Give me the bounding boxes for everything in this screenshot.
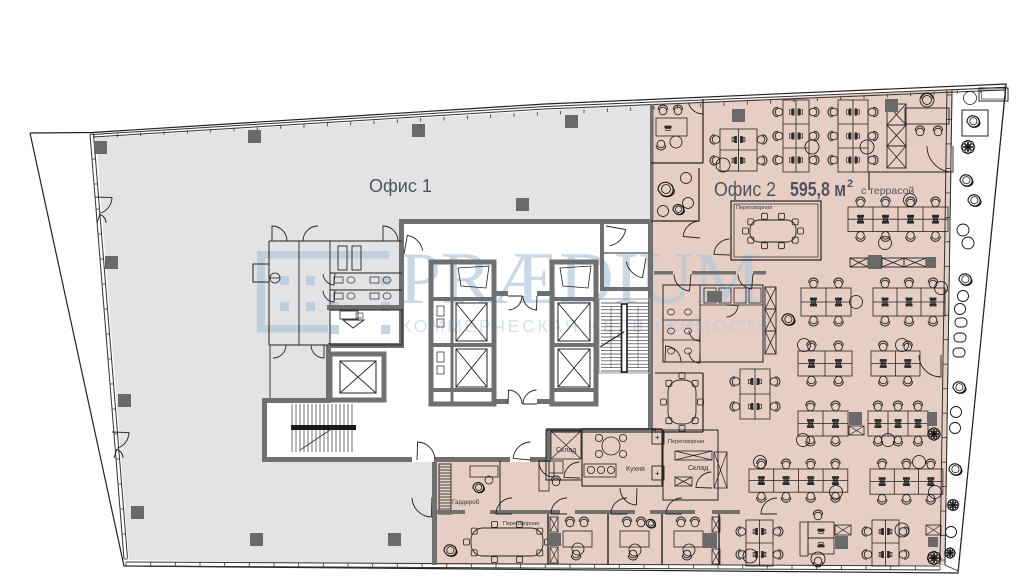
svg-text:Переговорная: Переговорная — [668, 439, 704, 445]
svg-text:+: + — [655, 469, 660, 478]
svg-text:Переговорная: Переговорная — [736, 205, 772, 211]
svg-text:Офис 2: Офис 2 — [714, 179, 776, 201]
svg-text:Гардероб: Гардероб — [452, 499, 480, 506]
svg-text:2: 2 — [847, 178, 853, 190]
svg-text:Переговорная: Переговорная — [503, 521, 539, 527]
svg-text:Офис 1: Офис 1 — [369, 176, 432, 196]
svg-text:Кухня: Кухня — [626, 466, 645, 473]
svg-text:с террасой: с террасой — [861, 185, 914, 197]
svg-text:Склад: Склад — [688, 465, 708, 472]
svg-text:Склад: Склад — [556, 447, 576, 454]
svg-text:+: + — [655, 433, 660, 442]
svg-text:595,8 м: 595,8 м — [790, 178, 846, 201]
